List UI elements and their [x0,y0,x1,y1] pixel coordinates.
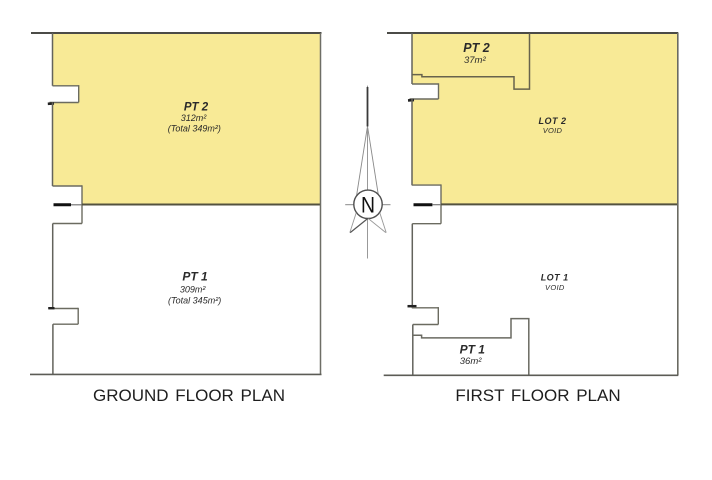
svg-text:VOID: VOID [545,283,565,292]
svg-text:PT 1: PT 1 [182,270,208,284]
svg-text:309m²: 309m² [180,285,207,295]
svg-text:PT 1: PT 1 [460,343,486,357]
svg-text:(Total 345m²): (Total 345m²) [168,295,221,305]
svg-text:LOT 1: LOT 1 [541,273,569,283]
svg-text:PT 2: PT 2 [463,41,489,55]
svg-text:VOID: VOID [543,126,563,135]
svg-text:LOT 2: LOT 2 [538,116,566,126]
svg-text:(Total 349m²): (Total 349m²) [168,124,221,134]
svg-text:GROUND FLOOR PLAN: GROUND FLOOR PLAN [93,386,285,405]
svg-text:36m²: 36m² [460,356,482,367]
svg-text:FIRST FLOOR PLAN: FIRST FLOOR PLAN [455,386,620,405]
svg-text:N: N [361,193,375,218]
svg-text:PT 2: PT 2 [184,102,209,114]
svg-text:37m²: 37m² [464,55,486,66]
svg-text:312m²: 312m² [181,113,208,123]
